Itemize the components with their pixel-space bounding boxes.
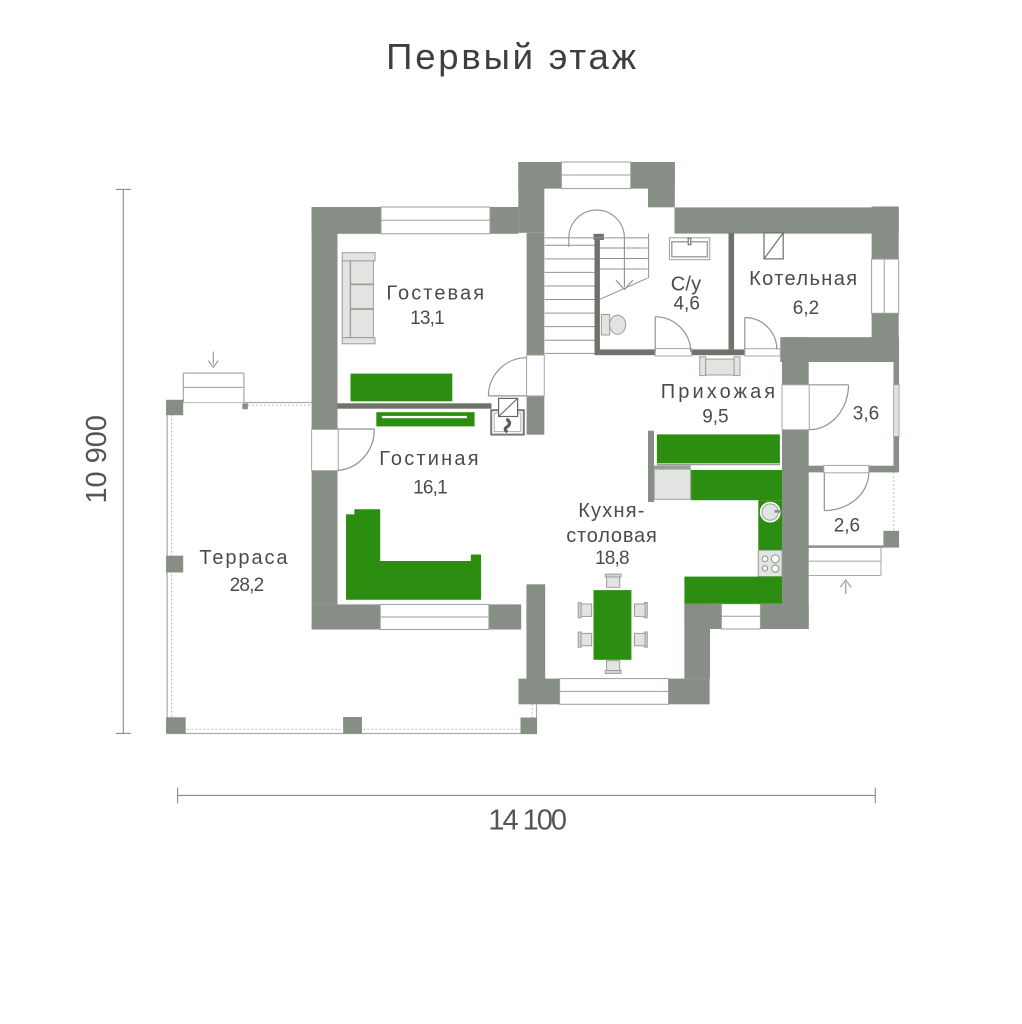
svg-text:9,5: 9,5 xyxy=(702,407,728,428)
svg-text:Первый этаж: Первый этаж xyxy=(386,36,639,77)
svg-text:6,2: 6,2 xyxy=(793,298,819,319)
svg-text:14 100: 14 100 xyxy=(488,805,566,837)
svg-text:2,6: 2,6 xyxy=(834,516,860,537)
svg-text:столовая: столовая xyxy=(566,525,657,547)
svg-text:28,2: 28,2 xyxy=(230,575,264,596)
svg-text:18,8: 18,8 xyxy=(595,548,629,569)
svg-text:Гостиная: Гостиная xyxy=(379,448,481,470)
svg-text:Котельная: Котельная xyxy=(749,268,858,290)
svg-text:13,1: 13,1 xyxy=(410,308,444,329)
svg-text:Гостевая: Гостевая xyxy=(386,283,486,305)
svg-text:4,6: 4,6 xyxy=(673,294,699,315)
svg-text:Терраса: Терраса xyxy=(199,547,289,569)
svg-text:Прихожая: Прихожая xyxy=(661,381,778,403)
svg-text:С/у: С/у xyxy=(671,274,702,296)
svg-text:Кухня-: Кухня- xyxy=(578,500,645,522)
svg-text:10 900: 10 900 xyxy=(81,415,113,504)
svg-text:16,1: 16,1 xyxy=(413,478,447,499)
svg-text:3,6: 3,6 xyxy=(853,403,879,424)
